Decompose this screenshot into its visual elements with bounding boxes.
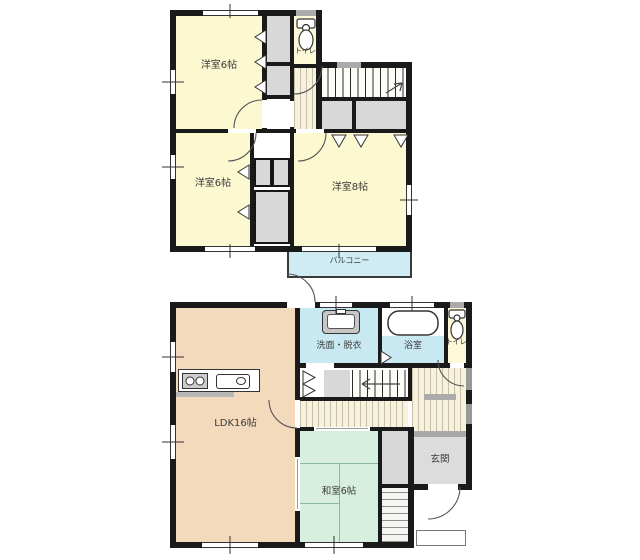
room-bath-tub-area: [382, 308, 444, 336]
stairs-1f: [352, 370, 408, 397]
stove-burners-icon: [182, 373, 208, 389]
balcony-door-opening: [302, 246, 376, 252]
window-icon: [170, 342, 176, 372]
window-icon: [205, 246, 255, 252]
hall-2f: [294, 68, 316, 129]
window-icon: [305, 542, 363, 548]
room-toilet-1f: [448, 308, 466, 363]
room-label-japanese-room: 和室6帖: [300, 487, 378, 497]
entrance-storage: [382, 488, 408, 542]
door-opening: [450, 363, 464, 368]
door-opening: [306, 363, 334, 368]
room-label-bedroom-a: 洋室6帖: [176, 60, 262, 71]
room-label-entrance: 玄関: [414, 455, 466, 465]
window-icon: [320, 302, 352, 308]
window-icon: [203, 10, 258, 16]
room-label-ldk: LDK16帖: [176, 418, 295, 429]
room-label-toilet-2f: トイレ: [291, 47, 319, 55]
closet-2f-strip-right: [356, 101, 406, 129]
wall: [352, 101, 356, 129]
stairs-2f: [320, 68, 406, 97]
window-icon: [202, 542, 258, 548]
wall: [300, 397, 412, 401]
kitchen-sink-icon: [216, 374, 250, 389]
window-icon: [170, 155, 176, 179]
washbasin-bowl: [327, 314, 355, 329]
room-label-bedroom-b: 洋室6帖: [176, 178, 250, 189]
window-icon: [296, 10, 316, 16]
room-toilet-2f: [294, 16, 316, 64]
sliding-door-icon: [297, 459, 298, 509]
closet-2f-b: [267, 66, 290, 95]
room-bedroom-b: [176, 133, 250, 246]
wall: [316, 62, 412, 68]
closet-japanese-room: [382, 431, 408, 484]
room-bedroom-a: [176, 16, 262, 129]
wall: [250, 133, 254, 246]
hall-step-bar: [424, 394, 456, 400]
wall: [408, 427, 414, 548]
wall: [378, 302, 382, 367]
closet-2f-mid-2: [272, 158, 290, 187]
door-opening: [290, 101, 294, 127]
wall: [444, 302, 448, 363]
tatami-line: [339, 463, 340, 542]
closet-2f-mid-3: [254, 190, 290, 244]
window-icon: [170, 425, 176, 459]
window-icon: [406, 185, 412, 215]
window-icon: [390, 302, 434, 308]
room-label-balcony: バルコニー: [287, 257, 412, 266]
room-label-bedroom-c: 洋室8帖: [294, 182, 406, 193]
window-icon: [170, 70, 176, 94]
room-label-bathroom: 浴室: [382, 342, 444, 352]
window-icon: [466, 368, 472, 390]
door-opening: [428, 484, 458, 490]
counter-shadow: [176, 392, 234, 397]
door-opening: [228, 129, 256, 133]
door-opening: [296, 129, 324, 133]
wall: [294, 64, 316, 68]
window-icon: [450, 302, 464, 308]
door-opening: [408, 401, 412, 427]
door-opening: [295, 400, 300, 428]
tatami-line: [300, 503, 339, 504]
porch: [416, 530, 466, 546]
hall-1f-horizontal: [300, 401, 408, 427]
closet-2f-mid-1: [254, 158, 272, 187]
wall: [406, 62, 412, 252]
room-label-toilet-1f: トイレ: [441, 338, 471, 346]
back-door-opening: [287, 302, 315, 308]
closet-2f-a: [267, 16, 290, 62]
wall: [316, 97, 412, 101]
window-icon: [337, 62, 361, 68]
room-label-washroom: 洗面・脱衣: [300, 342, 378, 352]
door-opening: [262, 100, 267, 128]
closet-under-stairs-white: [302, 370, 322, 397]
wall: [382, 484, 408, 488]
window-icon: [466, 404, 472, 424]
washbasin-tap: [336, 309, 346, 314]
wall: [267, 62, 290, 66]
wall: [267, 95, 290, 99]
closet-under-stairs: [324, 370, 350, 397]
wall: [316, 10, 322, 129]
floor-plan: 洋室6帖 洋室6帖 洋室8帖 トイレ バルコニー LDK16帖 洗面・脱衣 浴室…: [0, 0, 640, 560]
sliding-door-icon: [316, 428, 368, 429]
wall: [466, 302, 472, 490]
closet-2f-strip-left: [322, 101, 352, 129]
